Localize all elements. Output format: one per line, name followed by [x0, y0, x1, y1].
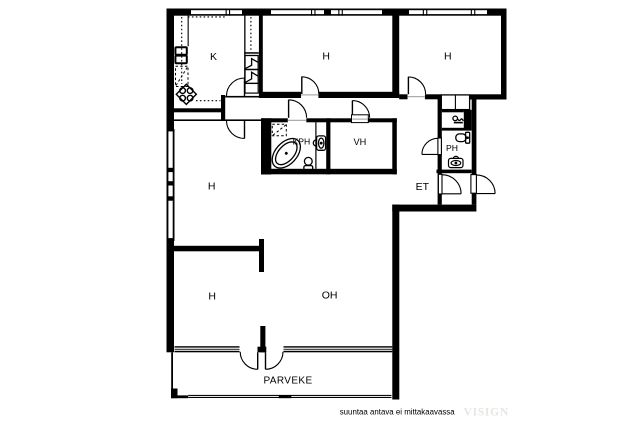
svg-text:PARVEKE: PARVEKE: [263, 376, 312, 387]
svg-text:OH: OH: [322, 290, 338, 302]
svg-text:H: H: [208, 290, 216, 302]
svg-text:ET: ET: [416, 181, 430, 193]
svg-text:H: H: [322, 51, 330, 63]
svg-text:VH: VH: [354, 137, 367, 147]
svg-text:suuntaa antava ei mittakaavass: suuntaa antava ei mittakaavassa: [340, 407, 456, 416]
svg-text:PH: PH: [446, 143, 458, 153]
svg-text:K: K: [210, 51, 217, 63]
svg-text:H: H: [208, 180, 216, 192]
svg-text:H: H: [444, 51, 452, 63]
svg-text:VISIGN: VISIGN: [464, 405, 509, 418]
svg-text:KPH: KPH: [293, 136, 311, 146]
